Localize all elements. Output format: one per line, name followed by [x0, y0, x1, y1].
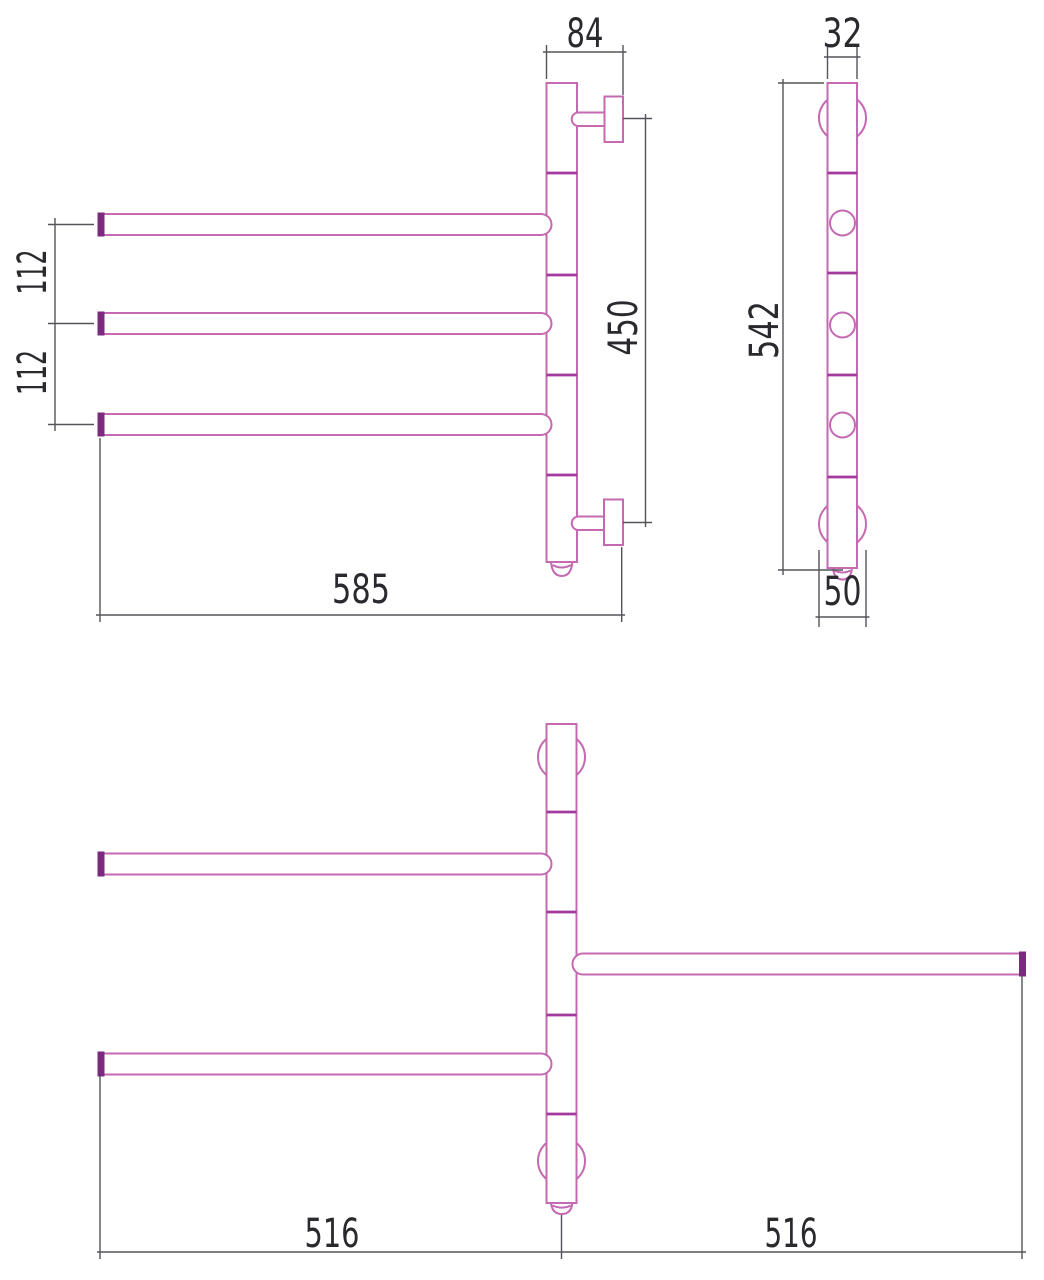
tube-bottom-cap-seam — [553, 1206, 572, 1208]
arm-end-cap — [98, 312, 105, 336]
bracket-stem-bottom — [572, 517, 604, 531]
drawing-canvas: 84 112 112 450 585 — [0, 0, 1044, 1280]
post-bottom-cap-seam — [553, 565, 572, 568]
dim-112-upper-label: 112 — [10, 250, 56, 295]
tube-outline — [828, 83, 858, 568]
dim-450-label: 450 — [601, 300, 647, 356]
dimension-32: 32 — [823, 11, 863, 79]
dim-32-label: 32 — [823, 11, 863, 57]
dimension-450: 450 — [601, 114, 652, 527]
arm-end-cap — [98, 1052, 105, 1077]
arm-end-cap — [98, 213, 105, 237]
side-view: 32 542 50 — [742, 11, 870, 627]
towel-arm-upper — [100, 214, 552, 235]
towel-arm-swivelled-right — [573, 954, 1023, 975]
plan-view: 516 516 — [97, 724, 1026, 1259]
post-bottom-cap — [551, 562, 572, 576]
towel-arm-lower — [100, 414, 552, 435]
towel-arm-middle — [100, 313, 552, 334]
towel-arm-left-lower — [100, 1054, 552, 1075]
dim-516-right-label: 516 — [765, 1211, 818, 1257]
dim-585-label: 585 — [332, 567, 390, 613]
towel-arm-left-upper — [100, 854, 552, 875]
dimension-112-pair: 112 112 — [10, 218, 94, 431]
arm-end-cap — [98, 852, 105, 877]
bracket-plate-bottom — [604, 500, 623, 546]
dim-112-lower-label: 112 — [10, 350, 56, 395]
bracket-stem-top — [572, 113, 605, 127]
bracket-plate-top — [605, 97, 624, 143]
dim-516-left-label: 516 — [305, 1211, 360, 1257]
dim-50-label: 50 — [824, 569, 862, 615]
front-view: 84 112 112 450 585 — [10, 11, 652, 622]
arm-end-cap — [1019, 952, 1026, 977]
drawing-sheet: 84 112 112 450 585 — [0, 0, 1044, 1280]
dim-84-label: 84 — [567, 11, 604, 57]
dim-542-label: 542 — [742, 301, 788, 359]
arm-end-cap — [98, 413, 105, 437]
